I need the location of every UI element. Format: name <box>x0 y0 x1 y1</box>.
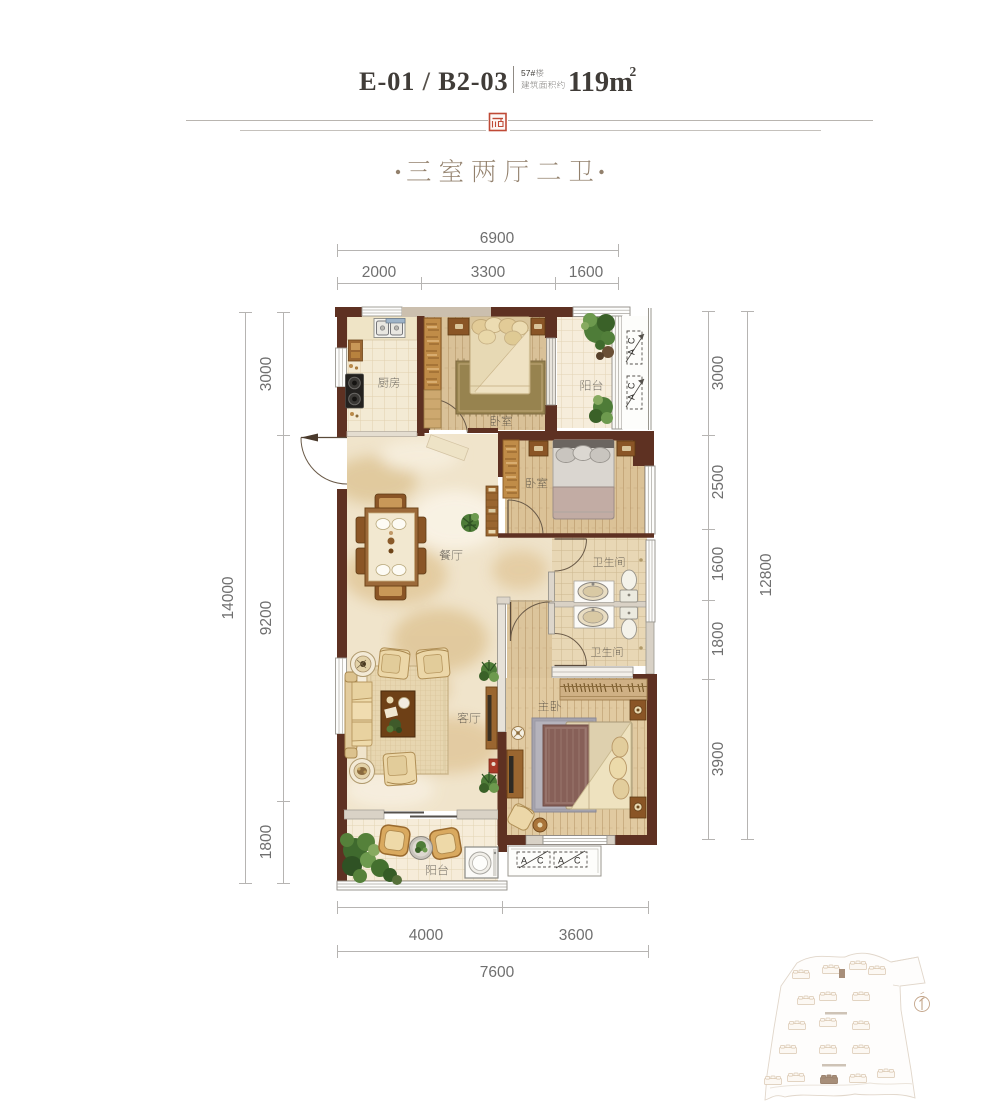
svg-text:A: A <box>627 349 637 355</box>
svg-text:12800: 12800 <box>758 553 775 596</box>
svg-text:119m: 119m <box>568 67 633 98</box>
svg-text:1600: 1600 <box>569 264 604 281</box>
svg-text:C: C <box>537 856 544 866</box>
svg-text:3300: 3300 <box>471 264 506 281</box>
svg-text:1800: 1800 <box>710 621 727 656</box>
svg-text:3000: 3000 <box>710 355 727 390</box>
svg-text:6900: 6900 <box>480 230 515 247</box>
svg-text:3000: 3000 <box>258 356 275 391</box>
svg-text:E-01 / B2-03: E-01 / B2-03 <box>359 66 508 96</box>
svg-text:2500: 2500 <box>710 464 727 499</box>
svg-text:1800: 1800 <box>258 824 275 859</box>
svg-text:C: C <box>627 337 637 344</box>
svg-text:C: C <box>574 856 581 866</box>
svg-text:4000: 4000 <box>409 927 444 944</box>
svg-text:2000: 2000 <box>362 264 397 281</box>
svg-text:A: A <box>627 394 637 400</box>
svg-text:14000: 14000 <box>220 576 237 619</box>
svg-text:7600: 7600 <box>480 964 515 981</box>
svg-text:1600: 1600 <box>710 546 727 581</box>
svg-text:3600: 3600 <box>559 927 594 944</box>
svg-text:A: A <box>558 856 564 866</box>
svg-text:57#: 57# <box>521 68 535 78</box>
svg-text:2: 2 <box>630 64 637 79</box>
svg-text:3900: 3900 <box>710 741 727 776</box>
svg-text:A: A <box>521 856 527 866</box>
svg-text:C: C <box>627 382 637 389</box>
svg-text:9200: 9200 <box>258 600 275 635</box>
